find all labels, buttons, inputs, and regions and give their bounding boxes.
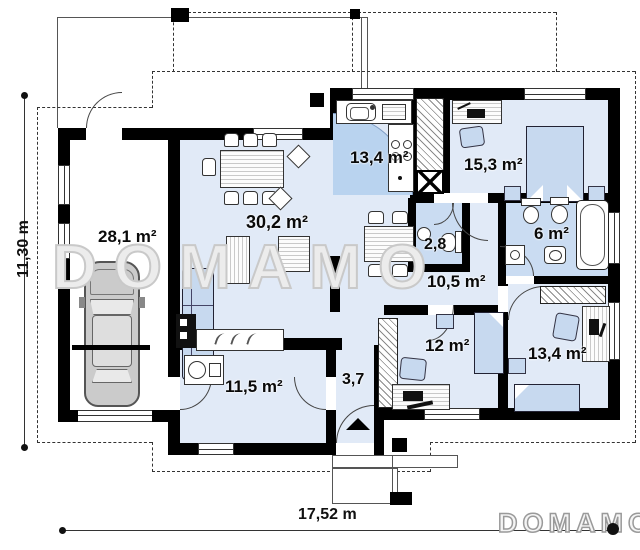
door-arc <box>86 92 122 128</box>
door-opening <box>326 377 336 410</box>
room-label-office: 12 m² <box>425 336 469 356</box>
shaft <box>416 170 444 194</box>
desk <box>392 384 450 410</box>
floor-plan: DOMAMO DOMAMO 11,30 m 17,52 m 28,1 m² 30… <box>0 0 640 550</box>
window <box>524 88 586 100</box>
door-opening <box>86 128 122 140</box>
nightstand <box>508 358 526 374</box>
terrace-line <box>361 17 362 90</box>
roof-dash <box>556 12 557 72</box>
roof-dash <box>152 442 153 472</box>
desk <box>452 100 502 124</box>
toilet-bowl <box>523 206 539 224</box>
porch-corner-block <box>390 492 412 505</box>
window <box>608 212 620 264</box>
room-label-entry: 3,7 <box>342 371 364 389</box>
room-label-garage: 28,1 m² <box>98 227 157 247</box>
laptop <box>589 319 599 335</box>
porch-step <box>332 455 458 468</box>
room-label-multipurpose: 11,5 m² <box>225 377 283 397</box>
laptop <box>403 391 423 401</box>
dining-chair <box>243 191 258 205</box>
wall <box>444 98 450 198</box>
boiler-drum <box>188 361 206 379</box>
toilet-tank <box>521 198 541 206</box>
dining-chair <box>224 133 239 147</box>
boiler <box>184 355 224 385</box>
kitchen-sink <box>346 103 376 121</box>
chimney <box>176 314 196 348</box>
dining-chair <box>243 133 258 147</box>
dimension-dot <box>21 444 28 451</box>
chair <box>392 211 408 224</box>
window <box>58 165 70 205</box>
printer <box>407 400 433 409</box>
dimension-dot <box>21 92 28 99</box>
chair <box>368 211 384 224</box>
window <box>352 88 414 100</box>
bath-sink <box>544 246 566 264</box>
single-bed <box>474 312 504 374</box>
garage-partition <box>72 345 150 350</box>
bidet-base <box>550 197 569 205</box>
bidet-bowl <box>551 205 568 224</box>
nightstand <box>504 186 521 201</box>
counter-dot <box>398 176 402 180</box>
roof-dash <box>152 71 153 108</box>
room-label-bedroom-right: 13,4 m² <box>528 344 587 364</box>
roof-dash <box>152 71 635 72</box>
door-opening <box>434 193 454 203</box>
dimension-dot <box>59 527 66 534</box>
sink-drainer <box>382 104 406 120</box>
desk-chair <box>399 357 427 382</box>
porch-step <box>332 468 398 504</box>
room-label-kitchen: 13,4 m² <box>350 148 409 168</box>
sink-basin <box>549 250 562 261</box>
faucet <box>370 105 375 110</box>
bathtub <box>576 200 609 270</box>
car-roof <box>92 315 132 367</box>
terrace-line <box>57 17 58 128</box>
garage-door <box>78 410 152 422</box>
dining-chair <box>202 158 216 176</box>
door-opening <box>506 276 534 284</box>
dining-chair <box>262 133 277 147</box>
height-dimension-label: 11,30 m <box>15 209 33 289</box>
desk-chair <box>552 312 580 342</box>
front-door-opening <box>336 443 374 455</box>
blanket-fold <box>567 185 583 201</box>
washer-drum <box>510 250 520 260</box>
door-opening <box>168 377 180 410</box>
nightstand <box>436 314 454 329</box>
width-dimension-label: 17,52 m <box>298 506 357 524</box>
lamp <box>599 323 607 337</box>
terrace-line <box>367 17 368 90</box>
brand-logo: DOMAMO <box>498 508 640 539</box>
terrace-post <box>171 8 189 22</box>
porch-column <box>392 438 407 452</box>
roof-dash <box>178 12 556 13</box>
entrance-arrow <box>346 418 370 430</box>
window <box>198 443 234 455</box>
door-opening <box>498 286 508 312</box>
sofa-cushion-line <box>183 305 213 306</box>
single-bed <box>514 384 580 412</box>
room-label-living: 30,2 m² <box>246 212 308 233</box>
roof-dash <box>37 442 152 443</box>
room-label-hall: 10,5 m² <box>427 272 486 292</box>
blanket-fold <box>489 313 503 327</box>
washing-machine <box>505 245 525 265</box>
room-label-bathroom: 6 m² <box>534 224 569 244</box>
desk-chair <box>459 125 486 148</box>
door-opening <box>452 193 488 203</box>
closet-hangers <box>540 286 606 304</box>
chimney-flue <box>180 319 187 326</box>
nightstand <box>588 186 605 201</box>
roof-dash <box>352 12 353 72</box>
terrace-post <box>350 9 360 19</box>
blanket-fold <box>515 385 529 399</box>
roof-dash <box>430 442 635 443</box>
dining-table <box>220 150 284 188</box>
sink-basin <box>350 107 369 120</box>
room-label-bedroom-top: 15,3 m² <box>464 155 523 175</box>
boiler-panel <box>209 363 221 377</box>
dining-chair <box>224 191 239 205</box>
roof-dash <box>37 107 38 443</box>
car-rear-window <box>92 369 132 383</box>
double-bed <box>526 126 584 202</box>
terrace-post <box>310 93 324 107</box>
terrace-line <box>57 17 367 18</box>
toilet-tank <box>455 231 462 253</box>
chimney-flue <box>180 332 187 339</box>
window <box>253 128 303 140</box>
logo-dot <box>607 523 619 535</box>
room-label-wc: 2,8 <box>424 236 446 254</box>
roof-dash <box>635 71 636 443</box>
laptop <box>467 109 485 118</box>
